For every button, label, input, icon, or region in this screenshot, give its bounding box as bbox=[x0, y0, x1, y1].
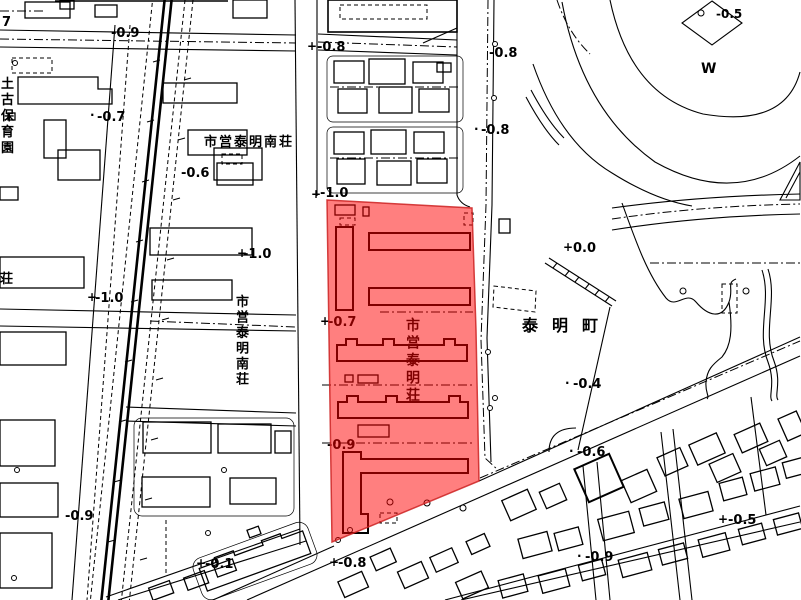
map-label: + bbox=[311, 187, 321, 201]
map-label: · bbox=[569, 444, 574, 458]
map-label: + bbox=[237, 246, 247, 260]
map-label: -0.8 bbox=[317, 40, 345, 55]
map-viewport: 土古保育園市営泰明南荘荘市営泰明南荘市営泰明荘泰明町W7-0.9-0.7-0.6… bbox=[0, 0, 801, 600]
map-label: · bbox=[90, 108, 95, 122]
map-label: 0.0 bbox=[573, 241, 596, 256]
map-label: -0.4 bbox=[573, 377, 601, 392]
map-label: 泰明町 bbox=[521, 316, 612, 335]
map-label: -0.6 bbox=[577, 445, 605, 460]
map-label: -0.8 bbox=[481, 123, 509, 138]
map-label: · bbox=[474, 122, 479, 136]
map-label: -1.0 bbox=[95, 291, 123, 306]
map-label: · bbox=[565, 376, 570, 390]
map-label: -0.8 bbox=[338, 556, 366, 571]
map-label: -0.7 bbox=[97, 110, 125, 125]
highlight-overlay-municipal-taimei-housing bbox=[327, 200, 479, 542]
map-label: + bbox=[329, 555, 339, 569]
map-label: 市営泰明南荘 bbox=[235, 294, 250, 388]
map-label: -0.6 bbox=[181, 166, 209, 181]
map-label: -0.1 bbox=[205, 557, 233, 572]
map-label: + bbox=[718, 512, 728, 526]
map-label: + bbox=[307, 39, 317, 53]
map-label: + bbox=[196, 556, 206, 570]
map-label: -0.9 bbox=[65, 509, 93, 524]
map-label: -1.0 bbox=[243, 247, 271, 262]
map-label: 7 bbox=[2, 15, 11, 30]
map-label: 荘 bbox=[0, 271, 13, 287]
map-label: -0.5 bbox=[728, 513, 756, 528]
map-label: + bbox=[563, 240, 573, 254]
map-label: -0.8 bbox=[489, 46, 517, 61]
map-label: -0.9 bbox=[585, 550, 613, 565]
map-label: + bbox=[87, 290, 97, 304]
map-label: 市営泰明南荘 bbox=[204, 134, 294, 150]
map-label: · bbox=[577, 549, 582, 563]
map-label: -0.5 bbox=[716, 7, 742, 21]
benchmark-symbol bbox=[698, 10, 704, 16]
pole-mark bbox=[206, 531, 211, 536]
map-label: W bbox=[701, 61, 716, 77]
city-planning-map: 土古保育園市営泰明南荘荘市営泰明南荘市営泰明荘泰明町W7-0.9-0.7-0.6… bbox=[0, 0, 801, 600]
map-label: 土古保育園 bbox=[0, 76, 15, 156]
map-label: -0.9 bbox=[111, 26, 139, 41]
map-label: -1.0 bbox=[320, 186, 348, 201]
